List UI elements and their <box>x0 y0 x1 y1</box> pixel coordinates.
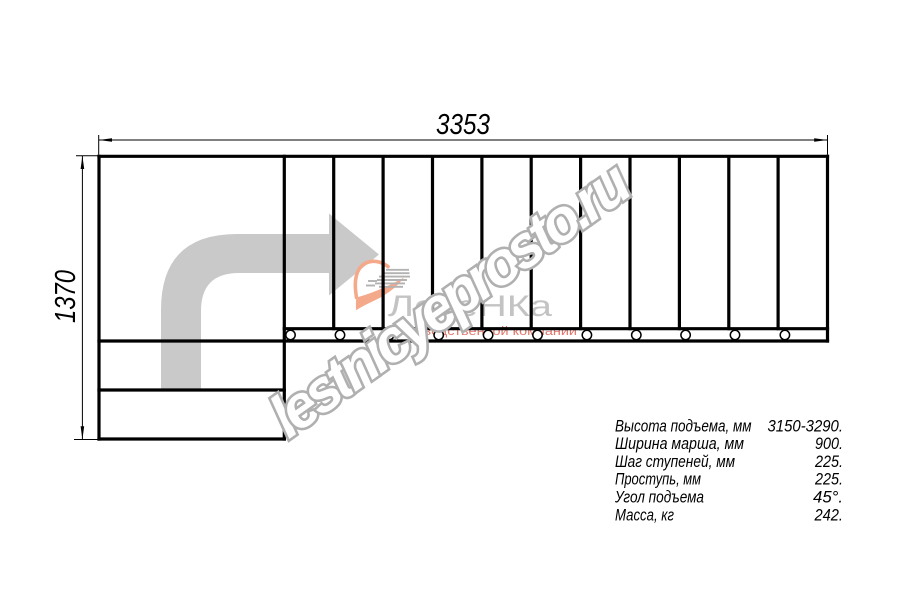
svg-text:1370: 1370 <box>50 270 82 323</box>
svg-text:3353: 3353 <box>436 109 490 141</box>
svg-text:Шаг ступеней, мм: Шаг ступеней, мм <box>615 452 735 471</box>
svg-text:Проступь, мм: Проступь, мм <box>615 470 701 489</box>
svg-text:45°.: 45°. <box>813 488 843 507</box>
svg-text:Высота подъема, мм: Высота подъема, мм <box>615 416 752 435</box>
svg-text:225.: 225. <box>814 452 843 471</box>
svg-text:3150-3290.: 3150-3290. <box>768 416 844 435</box>
svg-text:900.: 900. <box>815 434 843 453</box>
svg-text:Ширина марша, мм: Ширина марша, мм <box>615 434 744 453</box>
svg-text:242.: 242. <box>814 505 843 524</box>
svg-text:Угол подъема: Угол подъема <box>614 488 704 507</box>
svg-text:Масса, кг: Масса, кг <box>615 505 674 524</box>
svg-text:225.: 225. <box>814 470 843 489</box>
